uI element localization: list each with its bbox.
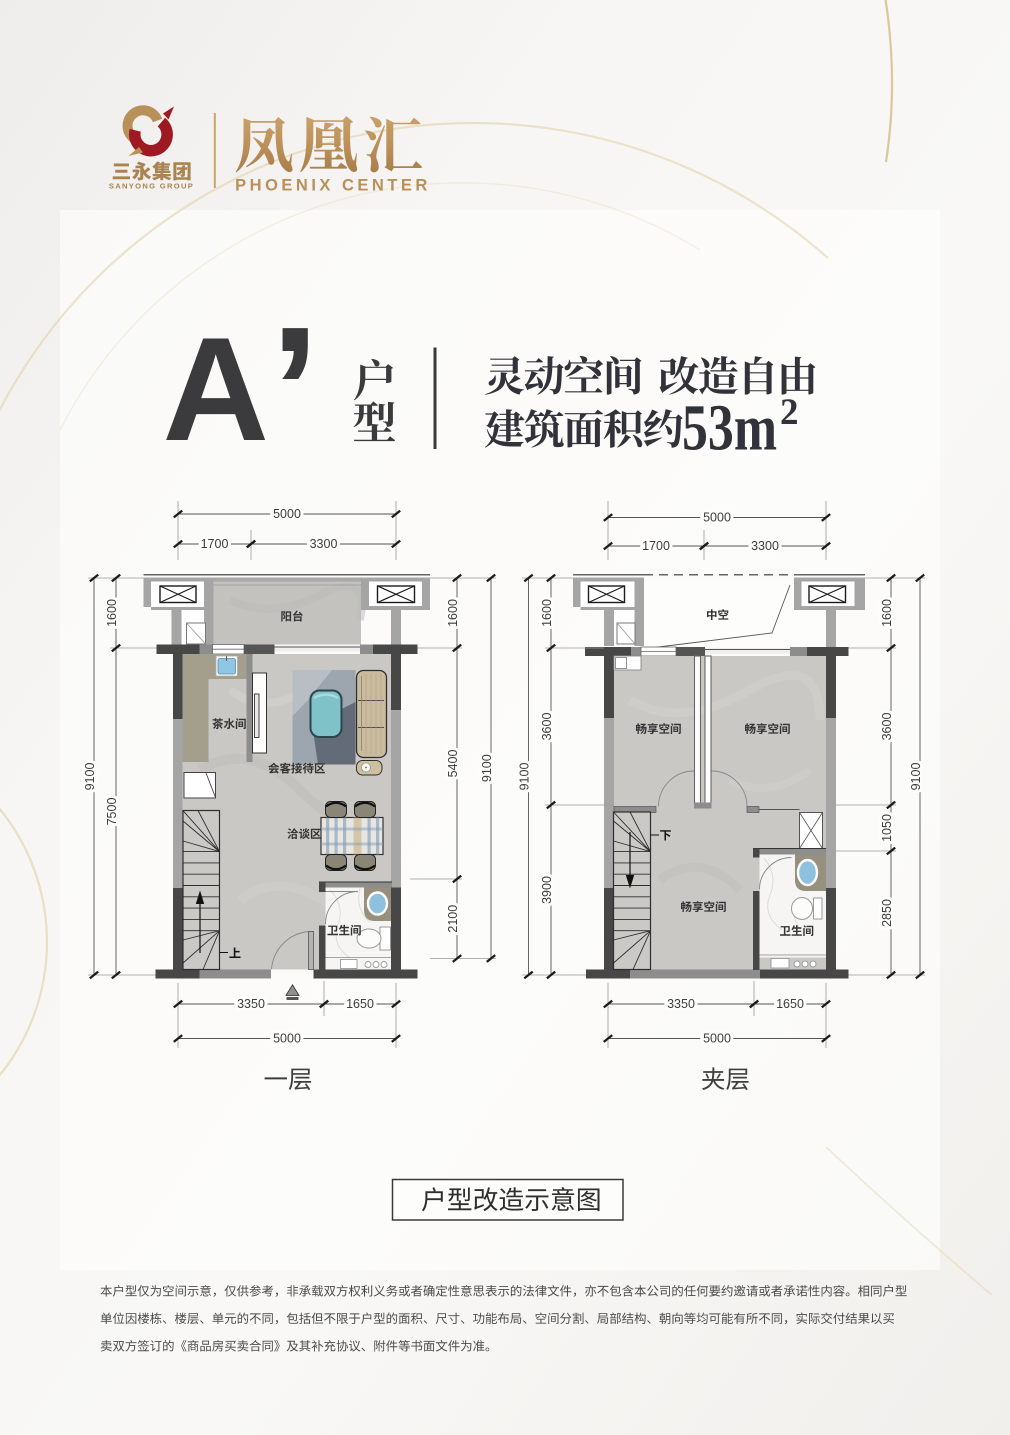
svg-text:1600: 1600	[446, 599, 460, 627]
svg-text:1600: 1600	[880, 599, 894, 627]
svg-text:9100: 9100	[518, 763, 532, 791]
svg-text:3350: 3350	[667, 997, 695, 1011]
svg-text:2100: 2100	[446, 905, 460, 933]
svg-text:1650: 1650	[776, 997, 804, 1011]
svg-text:3300: 3300	[310, 537, 338, 551]
svg-text:1600: 1600	[105, 599, 119, 627]
svg-text:1700: 1700	[201, 537, 229, 551]
svg-text:3300: 3300	[751, 539, 779, 553]
svg-text:9100: 9100	[480, 754, 494, 782]
svg-text:5000: 5000	[273, 1032, 301, 1046]
svg-text:2: 2	[780, 392, 799, 433]
svg-text:’: ’	[270, 290, 320, 491]
svg-text:A: A	[163, 307, 270, 472]
svg-text:7500: 7500	[105, 798, 119, 826]
svg-text:3350: 3350	[237, 997, 265, 1011]
svg-text:2850: 2850	[880, 899, 894, 927]
svg-text:3600: 3600	[880, 713, 894, 741]
svg-text:53m: 53m	[682, 392, 777, 465]
svg-text:3900: 3900	[540, 876, 554, 904]
svg-text:5400: 5400	[446, 750, 460, 778]
svg-text:5000: 5000	[703, 1032, 731, 1046]
svg-text:5000: 5000	[273, 507, 301, 521]
svg-text:9100: 9100	[909, 763, 923, 791]
svg-text:1050: 1050	[880, 814, 894, 842]
svg-text:3600: 3600	[540, 713, 554, 741]
svg-text:PHOENIX CENTER: PHOENIX CENTER	[235, 177, 431, 195]
svg-text:9100: 9100	[83, 763, 97, 791]
svg-text:1650: 1650	[346, 997, 374, 1011]
svg-text:1600: 1600	[540, 599, 554, 627]
svg-text:1700: 1700	[642, 539, 670, 553]
svg-text:SANYONG GROUP: SANYONG GROUP	[109, 182, 194, 191]
svg-text:5000: 5000	[703, 511, 731, 525]
